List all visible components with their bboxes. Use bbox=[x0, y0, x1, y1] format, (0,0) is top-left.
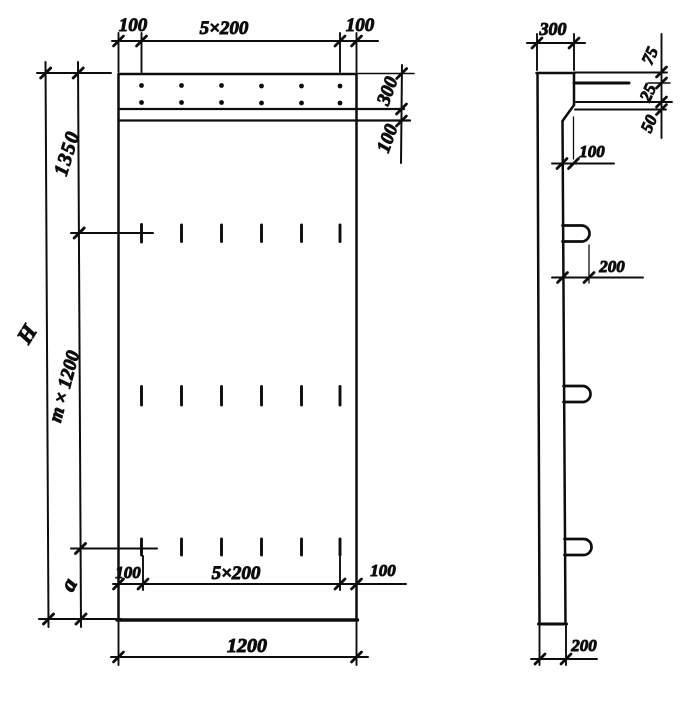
svg-text:100: 100 bbox=[346, 15, 375, 36]
svg-text:100: 100 bbox=[115, 563, 141, 582]
svg-text:200: 200 bbox=[598, 257, 625, 276]
svg-text:100: 100 bbox=[370, 561, 396, 580]
svg-text:300: 300 bbox=[539, 19, 567, 39]
svg-text:100: 100 bbox=[119, 15, 148, 36]
svg-text:200: 200 bbox=[570, 636, 597, 655]
svg-text:5×200: 5×200 bbox=[212, 563, 261, 584]
svg-text:5×200: 5×200 bbox=[200, 18, 249, 39]
svg-text:1200: 1200 bbox=[227, 635, 267, 657]
svg-text:100: 100 bbox=[579, 142, 605, 161]
